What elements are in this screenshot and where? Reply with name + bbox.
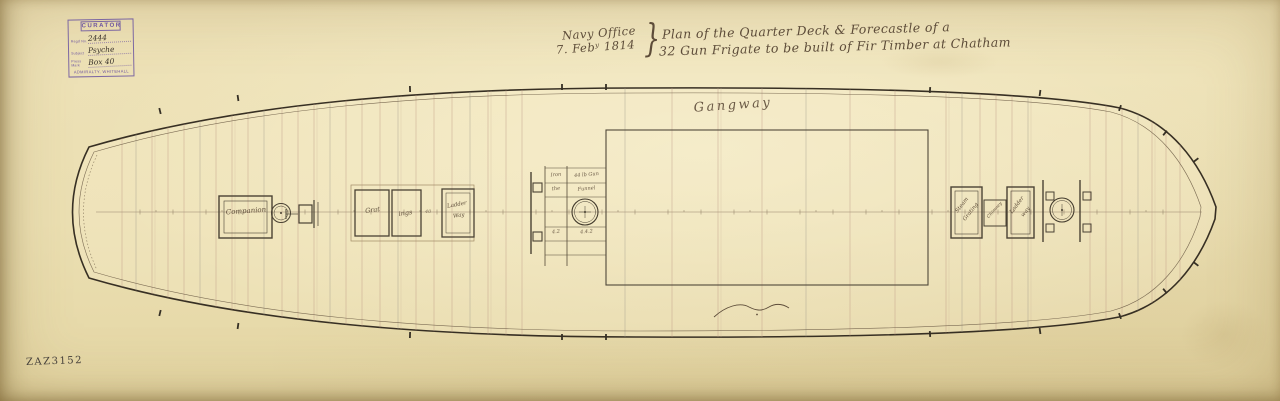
stamp-field-row: Subject Psyche — [71, 43, 131, 55]
deck-plan-drawing — [0, 0, 1280, 401]
stamp-field-row: Press Mark Box 40 — [71, 55, 131, 67]
stamp-field-row: Regd No. 2444 — [71, 31, 131, 43]
curator-stamp-header: CURATOR — [81, 21, 121, 32]
stamp-field-label: Regd No. — [71, 39, 88, 43]
stamp-footer: ADMIRALTY, WHITEHALL — [71, 68, 131, 74]
stamp-field-value: Psyche — [88, 45, 131, 56]
scanned-ship-plan: CURATOR Regd No. 2444 Subject Psyche Pre… — [0, 0, 1280, 401]
stamp-field-value: Box 40 — [88, 57, 131, 68]
curator-stamp-title: CURATOR — [82, 23, 122, 30]
title-brace: } — [644, 16, 660, 60]
stamp-field-value: 2444 — [88, 33, 131, 44]
curator-stamp: CURATOR Regd No. 2444 Subject Psyche Pre… — [67, 18, 134, 77]
archive-reference: ZAZ3152 — [26, 355, 83, 368]
grating-number: 40 — [425, 209, 431, 215]
stamp-field-label: Press Mark — [71, 59, 88, 67]
stamp-field-label: Subject — [71, 51, 88, 55]
